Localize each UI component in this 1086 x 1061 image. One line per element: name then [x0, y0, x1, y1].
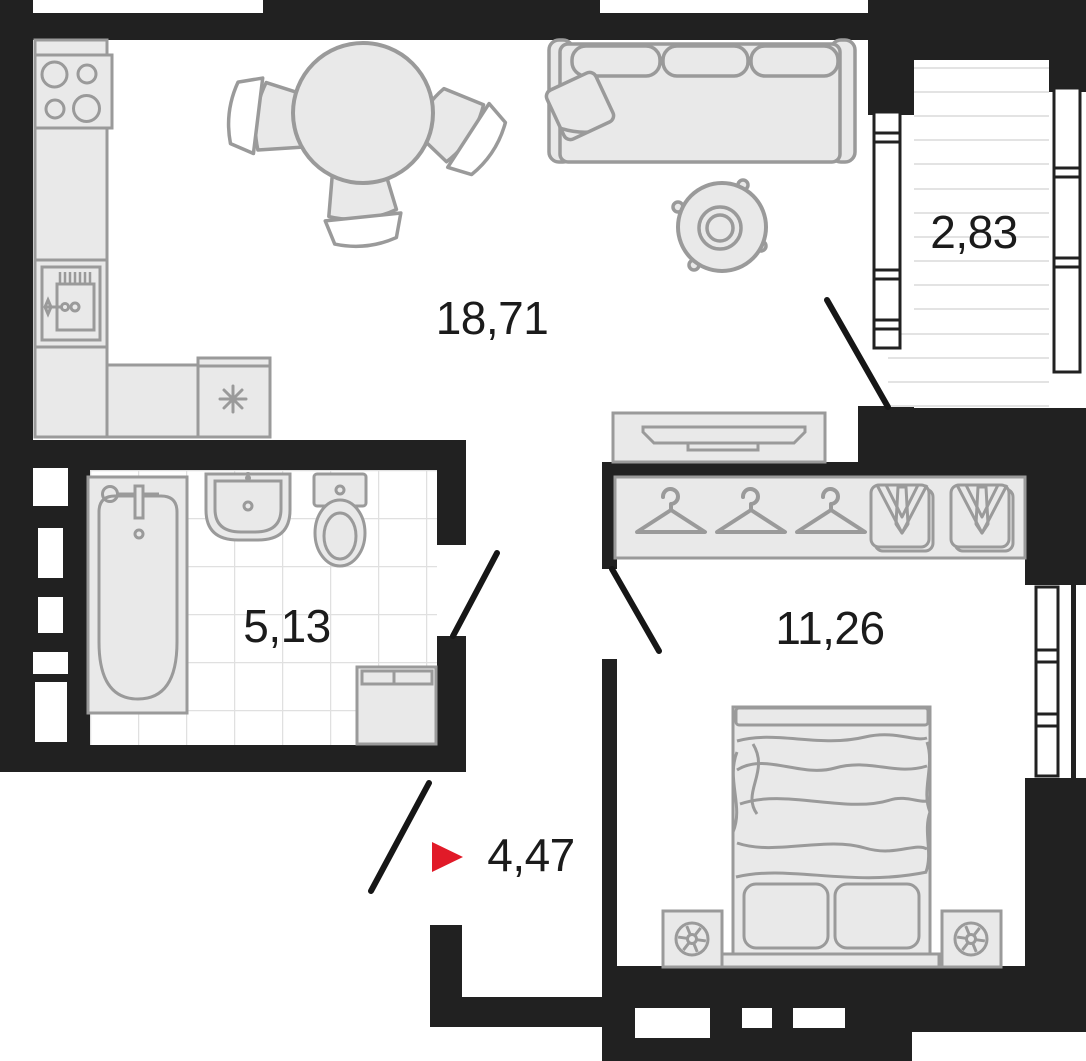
suit-icon	[951, 485, 1013, 551]
shaft-opening	[35, 682, 67, 742]
shaft-opening	[742, 1008, 772, 1028]
wall-segment	[858, 408, 1086, 477]
washbasin-icon	[206, 472, 290, 540]
pillow-icon	[835, 884, 919, 948]
bed-icon	[722, 707, 939, 967]
suit-icon	[871, 485, 933, 551]
wall-segment	[437, 470, 466, 545]
wall-segment	[430, 997, 617, 1027]
wall-segment	[602, 462, 873, 477]
shaft-opening	[793, 1008, 845, 1028]
sofa-icon	[544, 40, 855, 162]
wall-segment	[1025, 778, 1086, 968]
floor-plan: 18,71 2,83 5,13 11,26 4,47	[0, 0, 1086, 1061]
wall-segment	[33, 13, 868, 40]
wall-segment	[0, 440, 466, 470]
entrance-door-leaf	[371, 783, 429, 891]
wall-segment	[868, 60, 914, 115]
wall-segment	[868, 0, 1086, 60]
wheel-icon	[676, 923, 708, 955]
nightstand-left	[663, 911, 722, 967]
entrance-arrow-icon	[432, 842, 463, 872]
wall-segment	[0, 0, 33, 445]
shaft-opening	[38, 528, 63, 578]
shaft-opening	[33, 468, 68, 506]
bedroom-door-leaf	[612, 569, 659, 651]
wardrobe-icon	[615, 477, 1025, 558]
bathtub-icon	[88, 477, 187, 713]
wheel-icon	[955, 923, 987, 955]
room-label-bathroom: 5,13	[243, 599, 331, 653]
toilet-icon	[314, 474, 366, 566]
wall-segment	[910, 966, 1086, 1032]
stove-icon	[35, 55, 112, 128]
asterisk-icon	[220, 386, 246, 412]
floor-plan-canvas	[0, 0, 1086, 1061]
wall-segment	[263, 0, 600, 13]
dining-table-icon	[293, 43, 433, 183]
washing-machine-icon	[357, 667, 436, 744]
balcony-window-left	[874, 112, 900, 348]
shaft-opening	[38, 597, 63, 633]
bathroom-door-leaf	[453, 553, 497, 636]
room-label-bedroom: 11,26	[775, 601, 884, 655]
shaft-opening	[635, 1008, 710, 1038]
tv-stand-icon	[613, 413, 825, 462]
wall-segment	[1025, 477, 1086, 587]
balcony-window-right	[1054, 88, 1080, 372]
coffee-table-icon	[673, 180, 766, 271]
shaft-opening	[33, 652, 68, 674]
room-label-hallway: 4,47	[487, 828, 575, 882]
nightstand-right	[942, 911, 1001, 967]
room-label-balcony: 2,83	[930, 205, 1018, 259]
dishwasher-icon	[198, 358, 270, 437]
room-label-living-kitchen: 18,71	[436, 291, 549, 345]
dining-set	[225, 43, 514, 250]
wall-segment	[0, 745, 466, 772]
wall-segment	[437, 636, 466, 745]
pillow-icon	[744, 884, 828, 948]
